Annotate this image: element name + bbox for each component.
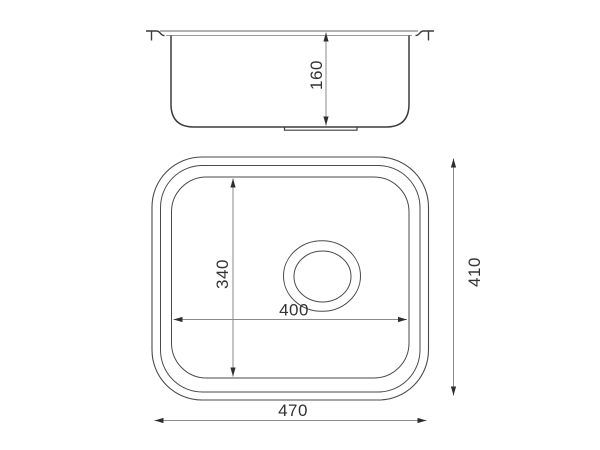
dimension-outer-height-label: 410 — [465, 257, 484, 287]
bowl-section-outline — [171, 36, 409, 128]
side-view: 160 — [146, 31, 434, 130]
middle-rim-outline — [161, 166, 421, 393]
drain-inner-circle — [294, 251, 351, 302]
dimension-inner-height: 340 — [213, 179, 233, 377]
dimension-depth: 160 — [307, 33, 326, 126]
dimension-inner-width-label: 400 — [279, 301, 309, 320]
dimension-outer-width: 470 — [155, 401, 427, 421]
mounting-clip-right-icon — [416, 31, 435, 41]
outer-rim-outline — [152, 157, 429, 400]
dimension-inner-height-label: 340 — [213, 259, 232, 289]
dimension-outer-width-label: 470 — [278, 401, 308, 420]
dimension-depth-label: 160 — [307, 60, 326, 90]
drawing-canvas: 160 340 400 — [0, 0, 600, 450]
dimension-inner-width: 400 — [174, 301, 408, 320]
dimension-outer-height: 410 — [454, 159, 485, 396]
inner-bowl-outline — [172, 177, 410, 378]
plan-view: 340 400 410 470 — [152, 157, 484, 421]
mounting-clip-left-icon — [146, 31, 165, 41]
sink-technical-drawing: 160 340 400 — [0, 0, 600, 450]
